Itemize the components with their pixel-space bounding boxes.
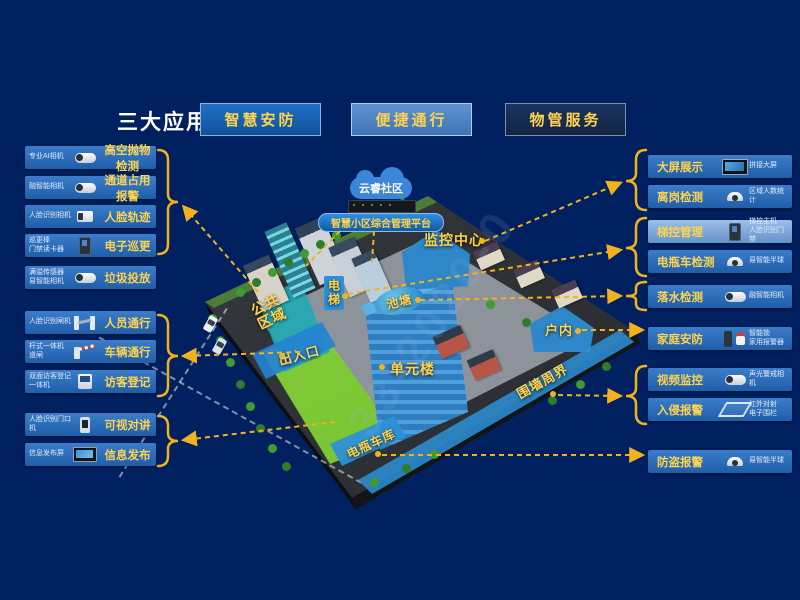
arrow-to-left-group-1 [184, 207, 258, 292]
right-row-home-security[interactable]: 家庭安防 智能锁 家用报警器 [648, 327, 792, 350]
left-brace-1 [158, 150, 178, 254]
left-brace-2 [158, 315, 178, 396]
device-label: 专业AI相机 [25, 153, 71, 162]
device-label: 红外对射 电子围栏 [749, 401, 792, 419]
monitor-center-label: 监控中心 [424, 230, 484, 250]
device-label: 梯控主机 人脸识别门禁 [749, 218, 792, 244]
function-label: 大屏展示 [648, 159, 721, 175]
right-row-off-post-detect[interactable]: 离岗检测 区域人数统计 [648, 185, 792, 208]
left-row-people-pass[interactable]: 人脸识别闸机 人员通行 [25, 311, 156, 334]
function-label: 通道占用报警 [99, 172, 156, 204]
left-row-lane-occupy-alarm[interactable]: 融智能相机 通道占用报警 [25, 176, 156, 199]
device-label: 区域人数统计 [749, 188, 792, 206]
elevator-label: 电梯 [326, 279, 343, 307]
device-label: 拼接大屏 [749, 162, 792, 171]
function-label: 访客登记 [99, 374, 156, 390]
barrier-gate-icon [71, 345, 99, 359]
right-brace-4 [626, 366, 646, 424]
function-label: 落水检测 [648, 289, 721, 305]
trees [0, 0, 9, 9]
left-brace-3 [158, 416, 178, 466]
right-row-elevator-control[interactable]: 梯控管理 梯控主机 人脸识别门禁 [648, 220, 792, 243]
page-title: 三大应用 [117, 106, 209, 136]
function-label: 高空抛物检测 [99, 142, 156, 174]
dome-camera-icon [721, 257, 749, 266]
arrow-perimeter-to-right-group-4 [558, 395, 620, 396]
function-label: 人员通行 [99, 315, 156, 331]
device-label: 智能锁 家用报警器 [749, 330, 792, 348]
dome-camera-icon [721, 192, 749, 201]
device-label: 巡更棒 门禁读卡器 [25, 237, 71, 255]
right-row-drowning-detect[interactable]: 落水检测 融智能相机 [648, 285, 792, 308]
left-row-info-publish[interactable]: 信息发布屏 信息发布 [25, 443, 156, 466]
left-row-visitor-register[interactable]: 双面访客登记 一体机 访客登记 [25, 370, 156, 393]
function-label: 人脸轨迹 [99, 209, 156, 225]
arrow-monitor-to-right-group-1 [485, 183, 620, 241]
device-label: 满溢传感器 易智能相机 [25, 269, 71, 287]
server-rack-icon [348, 200, 416, 213]
function-label: 可视对讲 [99, 417, 156, 433]
bullet-camera-icon [721, 292, 749, 302]
box-camera-icon [71, 211, 99, 222]
function-label: 信息发布 [99, 447, 156, 463]
right-row-big-screen[interactable]: 大屏展示 拼接大屏 [648, 155, 792, 178]
visitor-kiosk-icon [71, 374, 99, 389]
function-label: 离岗检测 [648, 189, 721, 205]
management-platform-label: 智慧小区综合管理平台 [318, 213, 444, 232]
turnstile-icon [71, 316, 99, 330]
smart-lock-icon [721, 331, 749, 347]
smart-community-infographic: 池塘 电梯 公共区域 出入口 单元楼 监控中心 户内 围墙周界 电瓶车库 云睿社… [0, 0, 800, 600]
right-row-intrusion-alarm[interactable]: 入侵报警 红外对射 电子围栏 [648, 398, 792, 421]
function-label: 垃圾投放 [99, 270, 156, 286]
dome-camera-icon [721, 457, 749, 466]
device-label: 人脸识别闸机 [25, 318, 71, 327]
info-screen-icon [71, 447, 99, 462]
function-label: 梯控管理 [648, 224, 721, 240]
bullet-camera-icon [71, 153, 99, 163]
car [212, 337, 228, 355]
bullet-camera-icon [71, 273, 99, 283]
cloud-label: 云睿社区 [359, 180, 403, 196]
device-label: 易智能半球 [749, 457, 792, 466]
elevator-panel-icon [721, 223, 749, 241]
right-row-burglar-alarm[interactable]: 防盗报警 易智能半球 [648, 450, 792, 473]
function-label: 视频监控 [648, 372, 721, 388]
zone-elevator: 电梯 [324, 276, 344, 310]
unit-building-label: 单元楼 [390, 359, 435, 379]
function-label: 电子巡更 [99, 238, 156, 254]
infrared-fence-icon [721, 402, 749, 417]
button-smart-security[interactable]: 智慧安防 [200, 103, 321, 136]
device-label: 人脸识别门口 机 [25, 416, 71, 434]
left-row-vehicle-pass[interactable]: 杆式一体机 道闸 车辆通行 [25, 340, 156, 363]
device-label: 融智能相机 [25, 183, 71, 192]
left-row-garbage-drop[interactable]: 满溢传感器 易智能相机 垃圾投放 [25, 266, 156, 289]
left-row-e-patrol[interactable]: 巡更棒 门禁读卡器 电子巡更 [25, 234, 156, 257]
right-brace-1 [626, 150, 646, 210]
function-label: 车辆通行 [99, 344, 156, 360]
button-convenient-access[interactable]: 便捷通行 [351, 103, 472, 136]
device-label: 人脸识别相机 [25, 212, 71, 221]
right-brace-2 [626, 218, 646, 276]
left-row-video-intercom[interactable]: 人脸识别门口 机 可视对讲 [25, 413, 156, 436]
right-brace-3 [626, 282, 646, 310]
bullet-camera-icon [71, 183, 99, 193]
door-station-icon [71, 417, 99, 433]
device-label: 杆式一体机 道闸 [25, 343, 71, 361]
left-row-high-throw-detect[interactable]: 专业AI相机 高空抛物检测 [25, 146, 156, 169]
button-property-service[interactable]: 物管服务 [505, 103, 626, 136]
access-panel-icon [71, 237, 99, 255]
function-label: 家庭安防 [648, 331, 721, 347]
bullet-camera-icon [721, 375, 749, 385]
device-label: 融智能相机 [749, 292, 792, 301]
device-label: 信息发布屏 [25, 450, 71, 459]
left-row-face-track[interactable]: 人脸识别相机 人脸轨迹 [25, 205, 156, 228]
function-label: 防盗报警 [648, 454, 721, 470]
function-label: 电瓶车检测 [648, 254, 721, 270]
device-label: 双面访客登记 一体机 [25, 373, 71, 391]
device-label: 易智能半球 [749, 257, 792, 266]
indoor-label: 户内 [545, 320, 573, 339]
device-label: 声光警戒相机 [749, 371, 792, 389]
function-label: 入侵报警 [648, 402, 721, 418]
pond-label: 池塘 [384, 290, 413, 313]
right-row-video-surveillance[interactable]: 视频监控 声光警戒相机 [648, 368, 792, 391]
video-wall-icon [721, 159, 749, 175]
right-row-ebike-detect[interactable]: 电瓶车检测 易智能半球 [648, 250, 792, 273]
cloud-icon: 云睿社区 [350, 177, 412, 199]
